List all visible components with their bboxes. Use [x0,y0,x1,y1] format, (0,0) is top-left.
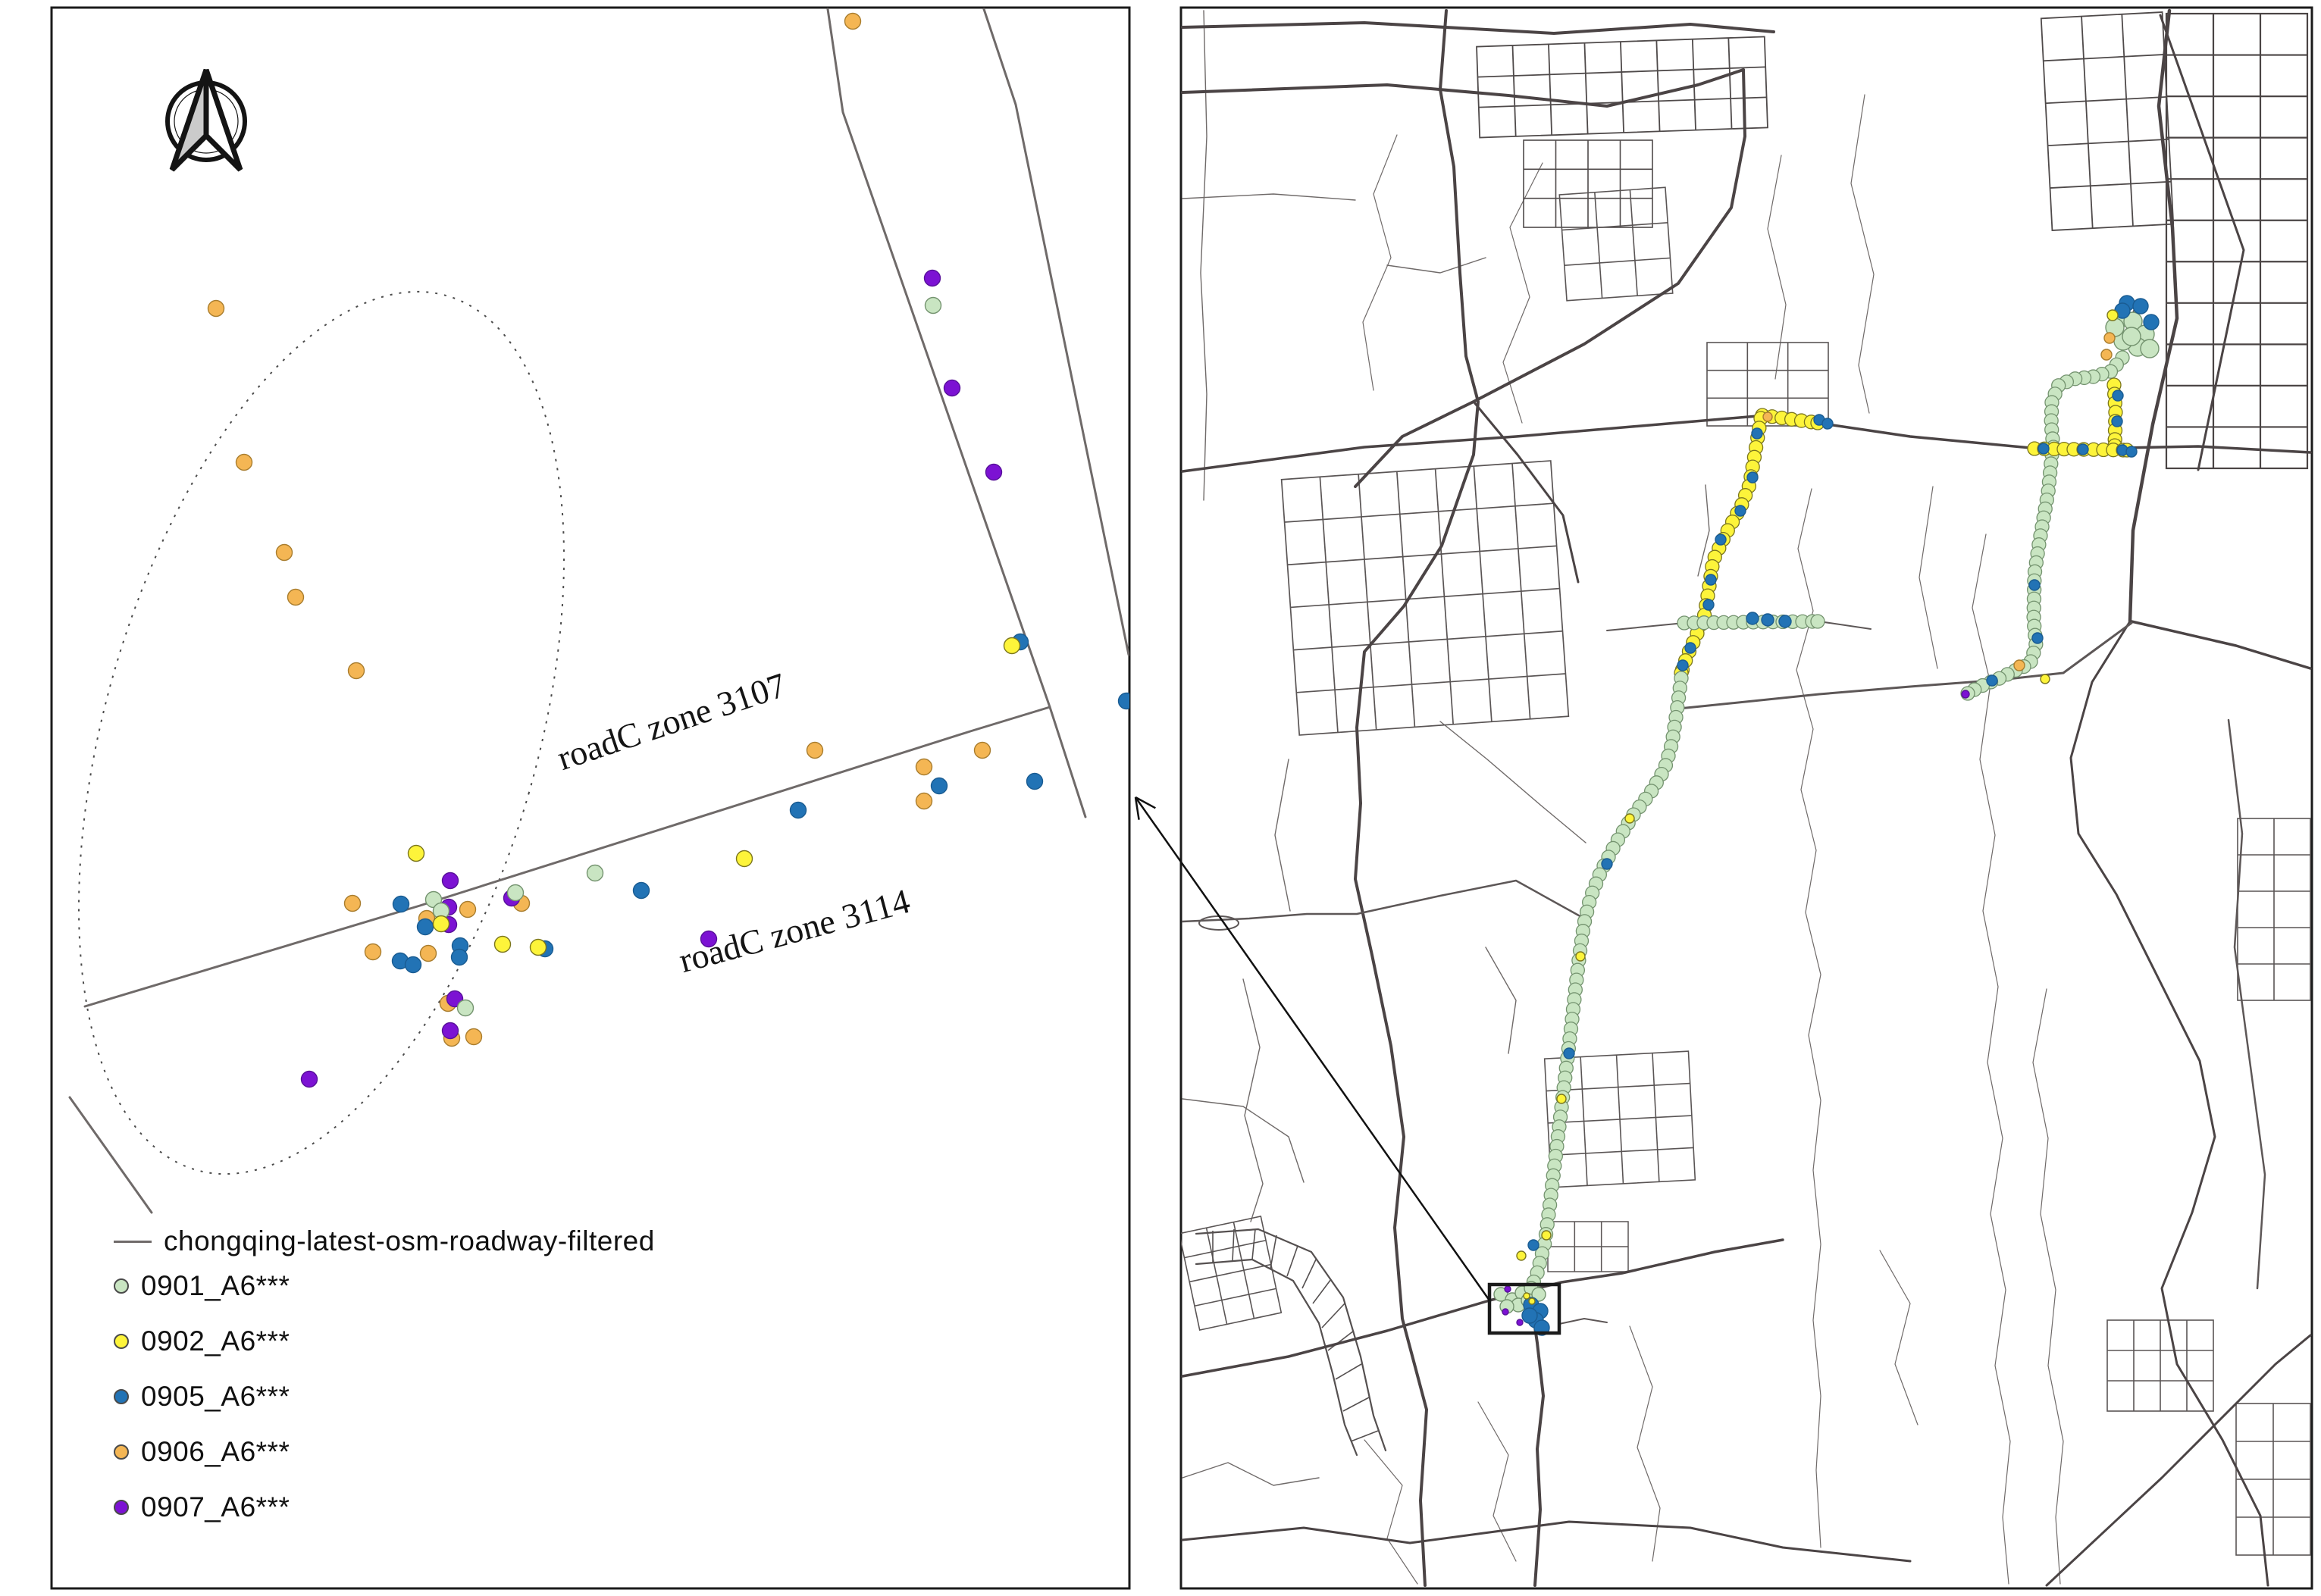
trajectory-yellow-accent [2041,674,2050,684]
left-map-panel [0,8,1135,1588]
map-figure-svg [0,0,2321,1596]
right-map-panel [1179,8,2312,1588]
trajectory-purple-accent [1962,690,1969,698]
endpoint-blob-yellow [2107,310,2118,321]
endpoint-blob-orange [2104,333,2115,343]
trajectory-orange-accent [1763,412,1772,421]
trajectory-yellow-loop-vertical [2107,378,2122,452]
